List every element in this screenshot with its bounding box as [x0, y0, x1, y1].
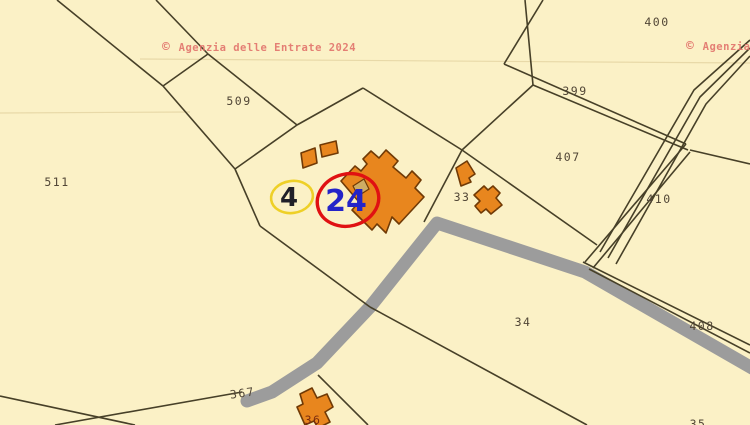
parcel-label-34: 34	[515, 315, 532, 329]
highlight-label-4: 4	[280, 183, 298, 213]
parcel-label-407: 407	[555, 150, 580, 164]
parcel-label-408: 408	[689, 319, 714, 333]
cadastral-map-viewport[interactable]: 40039940741040834335095113673635424© Age…	[0, 0, 750, 425]
parcel-label-400: 400	[644, 15, 669, 29]
watermark-text: Agenzia delle Entrate 2024	[703, 41, 750, 53]
watermark-right: © Agenzia delle Entrate 2024	[686, 39, 750, 54]
parcel-label-35: 35	[690, 417, 707, 425]
parcel-label-511: 511	[44, 175, 69, 189]
cadastral-map[interactable]: 40039940741040834335095113673635424© Age…	[0, 0, 750, 425]
watermark-text: Agenzia delle Entrate 2024	[179, 42, 356, 54]
parcel-label-33: 33	[454, 190, 471, 204]
parcel-label-399: 399	[562, 84, 587, 98]
parcel-label-410: 410	[646, 192, 671, 206]
parcel-label-509: 509	[226, 94, 251, 108]
copyright-icon: ©	[162, 40, 179, 55]
parcel-label-36: 36	[305, 413, 322, 425]
highlight-label-24: 24	[325, 184, 367, 219]
watermark-left: © Agenzia delle Entrate 2024	[162, 40, 356, 55]
copyright-icon: ©	[686, 39, 703, 54]
